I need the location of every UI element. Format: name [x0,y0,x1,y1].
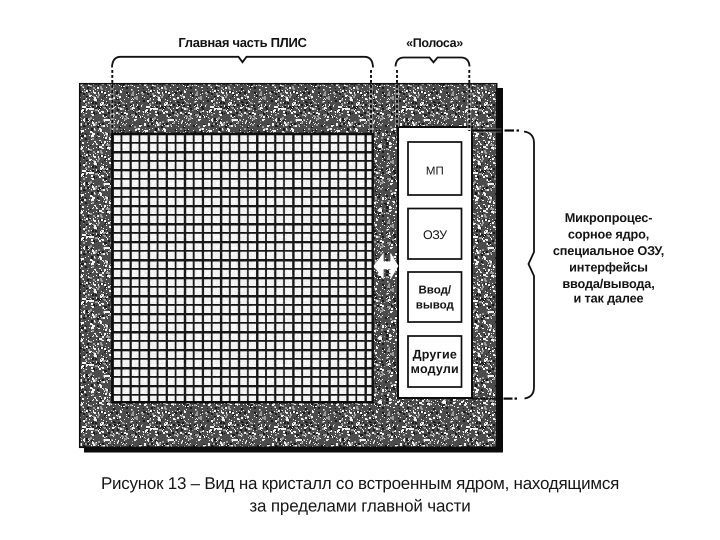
svg-text:Рисунок 13 – Вид на кристалл с: Рисунок 13 – Вид на кристалл со встроенн… [101,474,619,493]
svg-text:ввода/вывода,: ввода/вывода, [562,277,654,291]
svg-text:за пределами главной части: за пределами главной части [249,497,470,516]
svg-text:и так далее: и так далее [574,292,644,306]
svg-text:модули: модули [411,362,459,376]
svg-text:ОЗУ: ОЗУ [423,228,447,242]
svg-text:Другие: Другие [413,348,457,362]
svg-text:сорное ядро,: сорное ядро, [568,228,649,242]
svg-text:МП: МП [426,166,444,178]
svg-text:«Полоса»: «Полоса» [406,36,463,50]
svg-text:Главная часть ПЛИС: Главная часть ПЛИС [178,35,307,50]
svg-text:Ввод/: Ввод/ [419,284,452,296]
svg-text:вывод: вывод [416,300,455,312]
svg-text:интерфейсы: интерфейсы [569,261,648,275]
svg-text:Микропроцес-: Микропроцес- [565,211,653,225]
svg-text:специальное ОЗУ,: специальное ОЗУ, [553,244,664,258]
